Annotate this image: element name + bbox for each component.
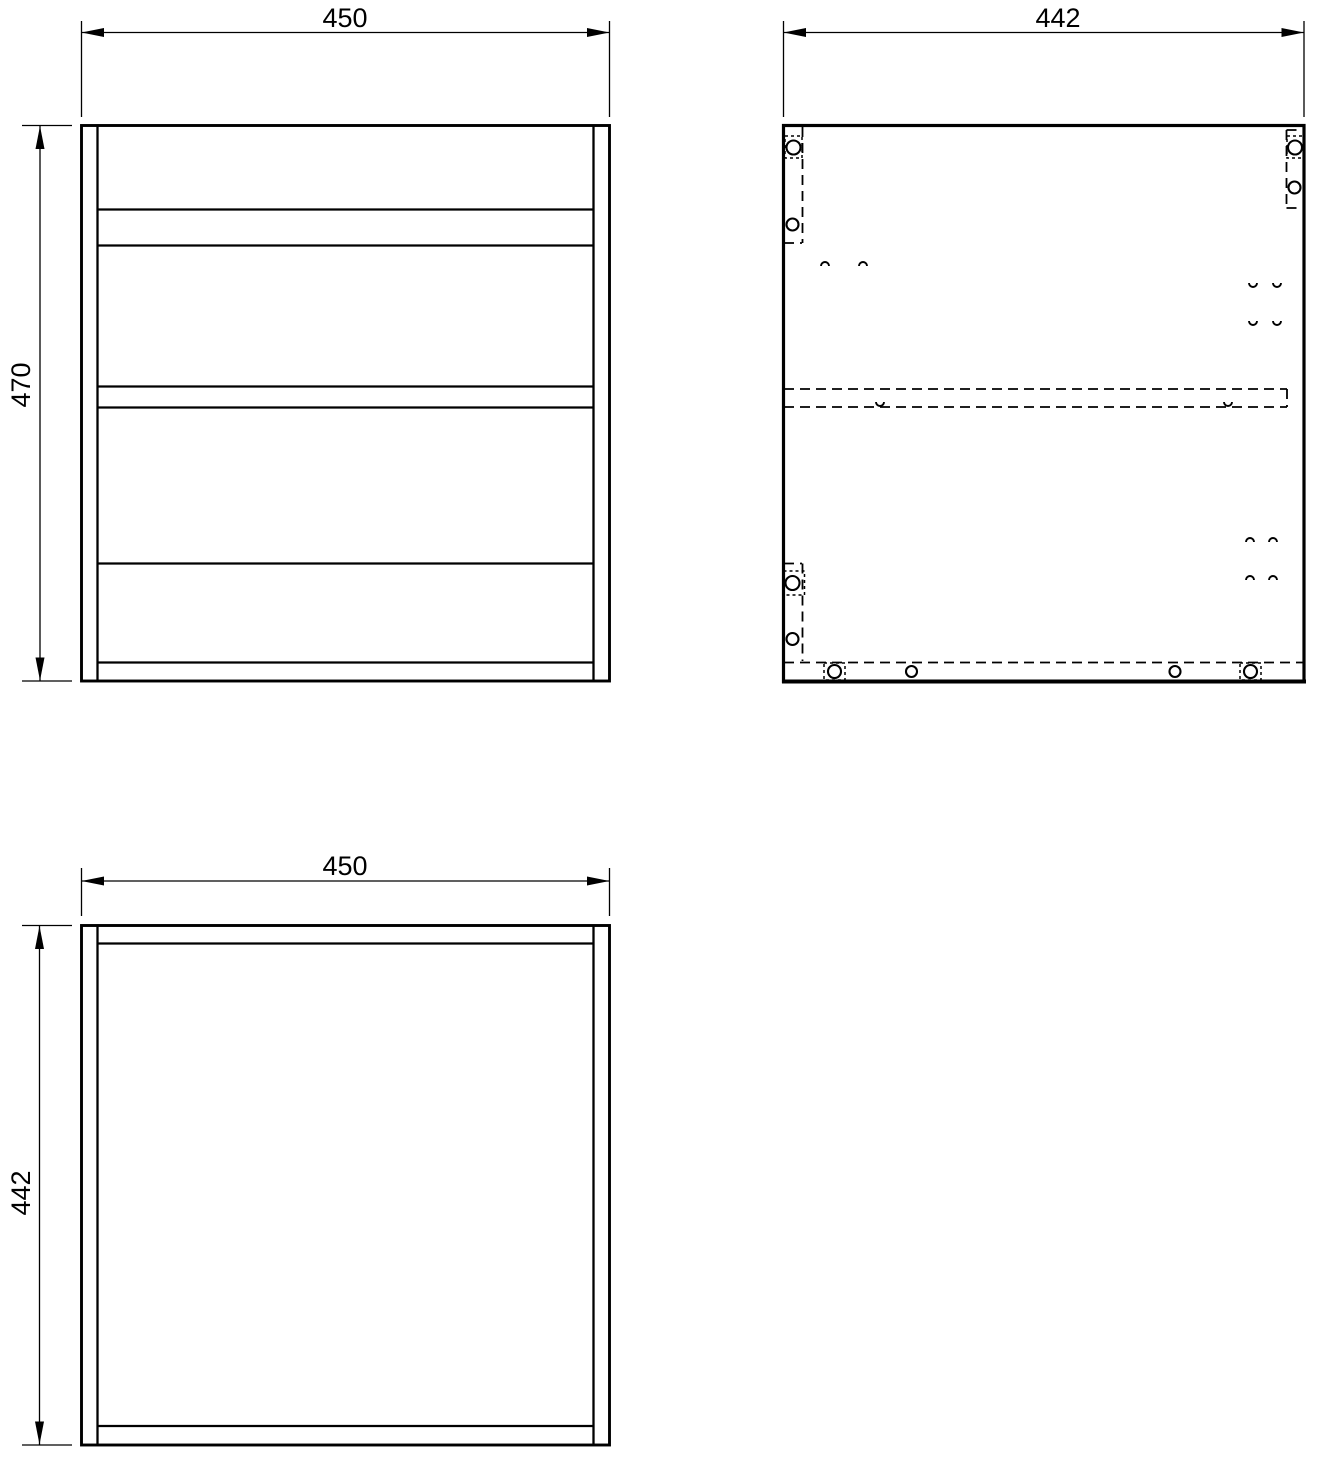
extension-lines	[784, 21, 1305, 117]
dimension-arrow-top	[36, 126, 45, 149]
dimension-arrow-bottom	[36, 658, 45, 681]
dimension-arrow-left	[784, 28, 807, 37]
drill-marks-center-divider	[876, 402, 1232, 406]
fitting-box-bottom-left	[784, 571, 805, 595]
dimension-arrow-right	[587, 28, 610, 37]
dowel-hole-top-left	[787, 219, 799, 231]
side-panel-outline	[784, 126, 1305, 682]
front-width-dimension: 450	[82, 3, 610, 117]
dimension-arrow-right	[1282, 28, 1305, 37]
drill-marks-upper-right	[1249, 283, 1281, 325]
dimension-label: 450	[322, 3, 367, 33]
top-depth-dimension: 442	[6, 926, 72, 1446]
dimension-label: 442	[1035, 3, 1080, 33]
top-side-panel-edges	[98, 926, 594, 1444]
dowel-hole-top-right	[1289, 182, 1301, 194]
front-height-dimension: 470	[6, 126, 72, 682]
cam-fitting-bottom-band-left	[828, 665, 841, 678]
top-outline	[82, 926, 610, 1446]
dowel-hole-bottom-band-right	[1170, 666, 1181, 677]
dimension-arrow-left	[82, 877, 105, 886]
dimension-arrow-top	[35, 926, 44, 949]
side-view	[782, 126, 1306, 682]
dimension-arrow-right	[587, 877, 610, 886]
cam-fitting-bottom-band-right	[1244, 665, 1257, 678]
dowel-hole-bottom-band-left	[906, 666, 917, 677]
cam-fitting-top-left	[787, 141, 801, 155]
cam-fitting-bottom-left	[786, 576, 800, 590]
front-shelf-and-rail-edges	[98, 210, 594, 663]
drill-marks-top-left	[821, 262, 867, 266]
dowel-hole-bottom-left	[787, 633, 799, 645]
drill-marks-lower-right	[1246, 538, 1277, 580]
top-view	[82, 926, 610, 1446]
cam-fitting-top-right	[1288, 141, 1302, 155]
dimension-arrow-left	[82, 28, 105, 37]
dimension-label: 470	[6, 362, 36, 407]
dimension-label: 450	[322, 851, 367, 881]
dimension-label: 442	[6, 1170, 36, 1215]
dimension-arrow-bottom	[35, 1422, 44, 1445]
extension-lines	[82, 21, 610, 117]
drawing-page: 450 470	[0, 0, 1317, 1457]
cabinet-technical-drawing: 450 470	[0, 0, 1317, 1457]
hidden-edge-center-divider	[784, 389, 1287, 407]
front-view	[82, 126, 610, 682]
side-depth-dimension: 442	[784, 3, 1305, 117]
hidden-edge-front-rail-top-right	[1287, 130, 1305, 208]
top-width-dimension: 450	[82, 851, 610, 916]
top-front-back-rail-edges	[98, 944, 594, 1427]
